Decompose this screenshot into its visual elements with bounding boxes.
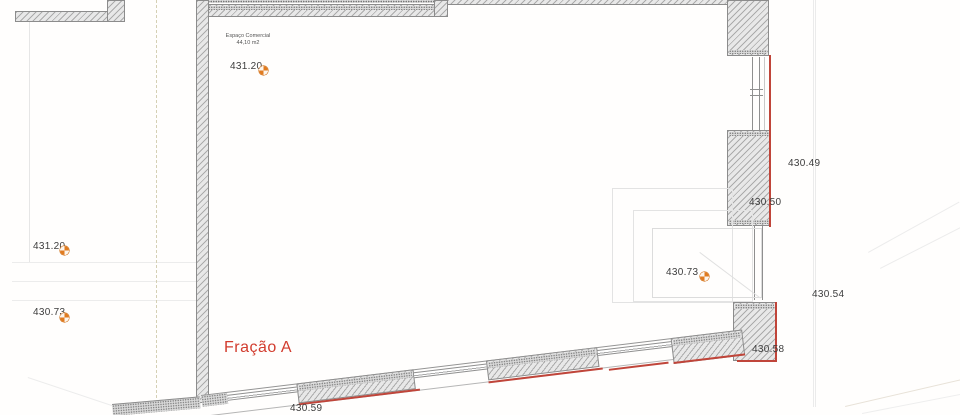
pier-stipple xyxy=(488,349,596,368)
pillar-sill xyxy=(735,304,774,309)
boundary-line-red xyxy=(737,360,777,362)
spot-level: 430.50 xyxy=(749,197,781,208)
window-mullion xyxy=(750,95,763,96)
window-frame-outer xyxy=(764,57,765,130)
level-marker-icon xyxy=(60,246,69,255)
terrain-line xyxy=(880,226,960,269)
window-frame xyxy=(752,57,753,130)
top-wall-step xyxy=(434,0,448,17)
neighbour-wall xyxy=(15,11,109,22)
right-pillar-top xyxy=(727,0,769,56)
terrain-line xyxy=(868,202,959,253)
window-frame xyxy=(759,57,760,130)
room-label: Espaço Comercial 44,10 m2 xyxy=(218,33,278,47)
fraction-label: Fração A xyxy=(224,339,292,357)
wall-stub xyxy=(201,393,228,407)
room-area: 44,10 m2 xyxy=(237,40,260,46)
pier-stipple xyxy=(673,332,741,346)
neighbour-wall-stub xyxy=(107,0,125,22)
level-marker-icon xyxy=(60,313,69,322)
setback-dashed-line xyxy=(156,0,157,403)
spot-level: 430.59 xyxy=(290,403,322,414)
spot-level: 430.58 xyxy=(752,344,784,355)
room-name: Espaço Comercial xyxy=(226,33,271,39)
window-mullion xyxy=(750,89,763,90)
pier-stipple xyxy=(299,372,413,392)
terrain-line xyxy=(862,394,960,414)
left-wall xyxy=(196,0,209,403)
floorplan-canvas: Espaço Comercial 44,10 m2 Fração A 431.2… xyxy=(0,0,960,415)
kerb-band xyxy=(112,396,201,415)
level-marker-icon xyxy=(700,272,709,281)
top-wall xyxy=(196,4,448,17)
spot-level: 430.54 xyxy=(812,289,844,300)
terrain-line xyxy=(12,262,196,263)
door-frame xyxy=(762,226,763,300)
pillar-sill xyxy=(729,50,767,54)
pillar-sill xyxy=(729,132,769,136)
terrain-line xyxy=(845,378,960,407)
spot-level: 430.73 xyxy=(666,267,698,278)
terrain-line xyxy=(29,12,30,262)
wall-outer-face xyxy=(204,350,745,415)
site-boundary-line xyxy=(813,0,816,407)
terrain-line xyxy=(28,377,114,407)
shopfront-glazing xyxy=(227,386,297,400)
upper-room-wall xyxy=(200,0,447,3)
spot-level: 431.20 xyxy=(230,61,262,72)
terrain-line xyxy=(12,300,196,301)
spot-level: 430.49 xyxy=(788,158,820,169)
top-wall-stipple xyxy=(198,6,446,10)
level-marker-icon xyxy=(259,66,268,75)
top-edge-wall xyxy=(447,0,729,5)
terrain-line xyxy=(12,281,196,282)
